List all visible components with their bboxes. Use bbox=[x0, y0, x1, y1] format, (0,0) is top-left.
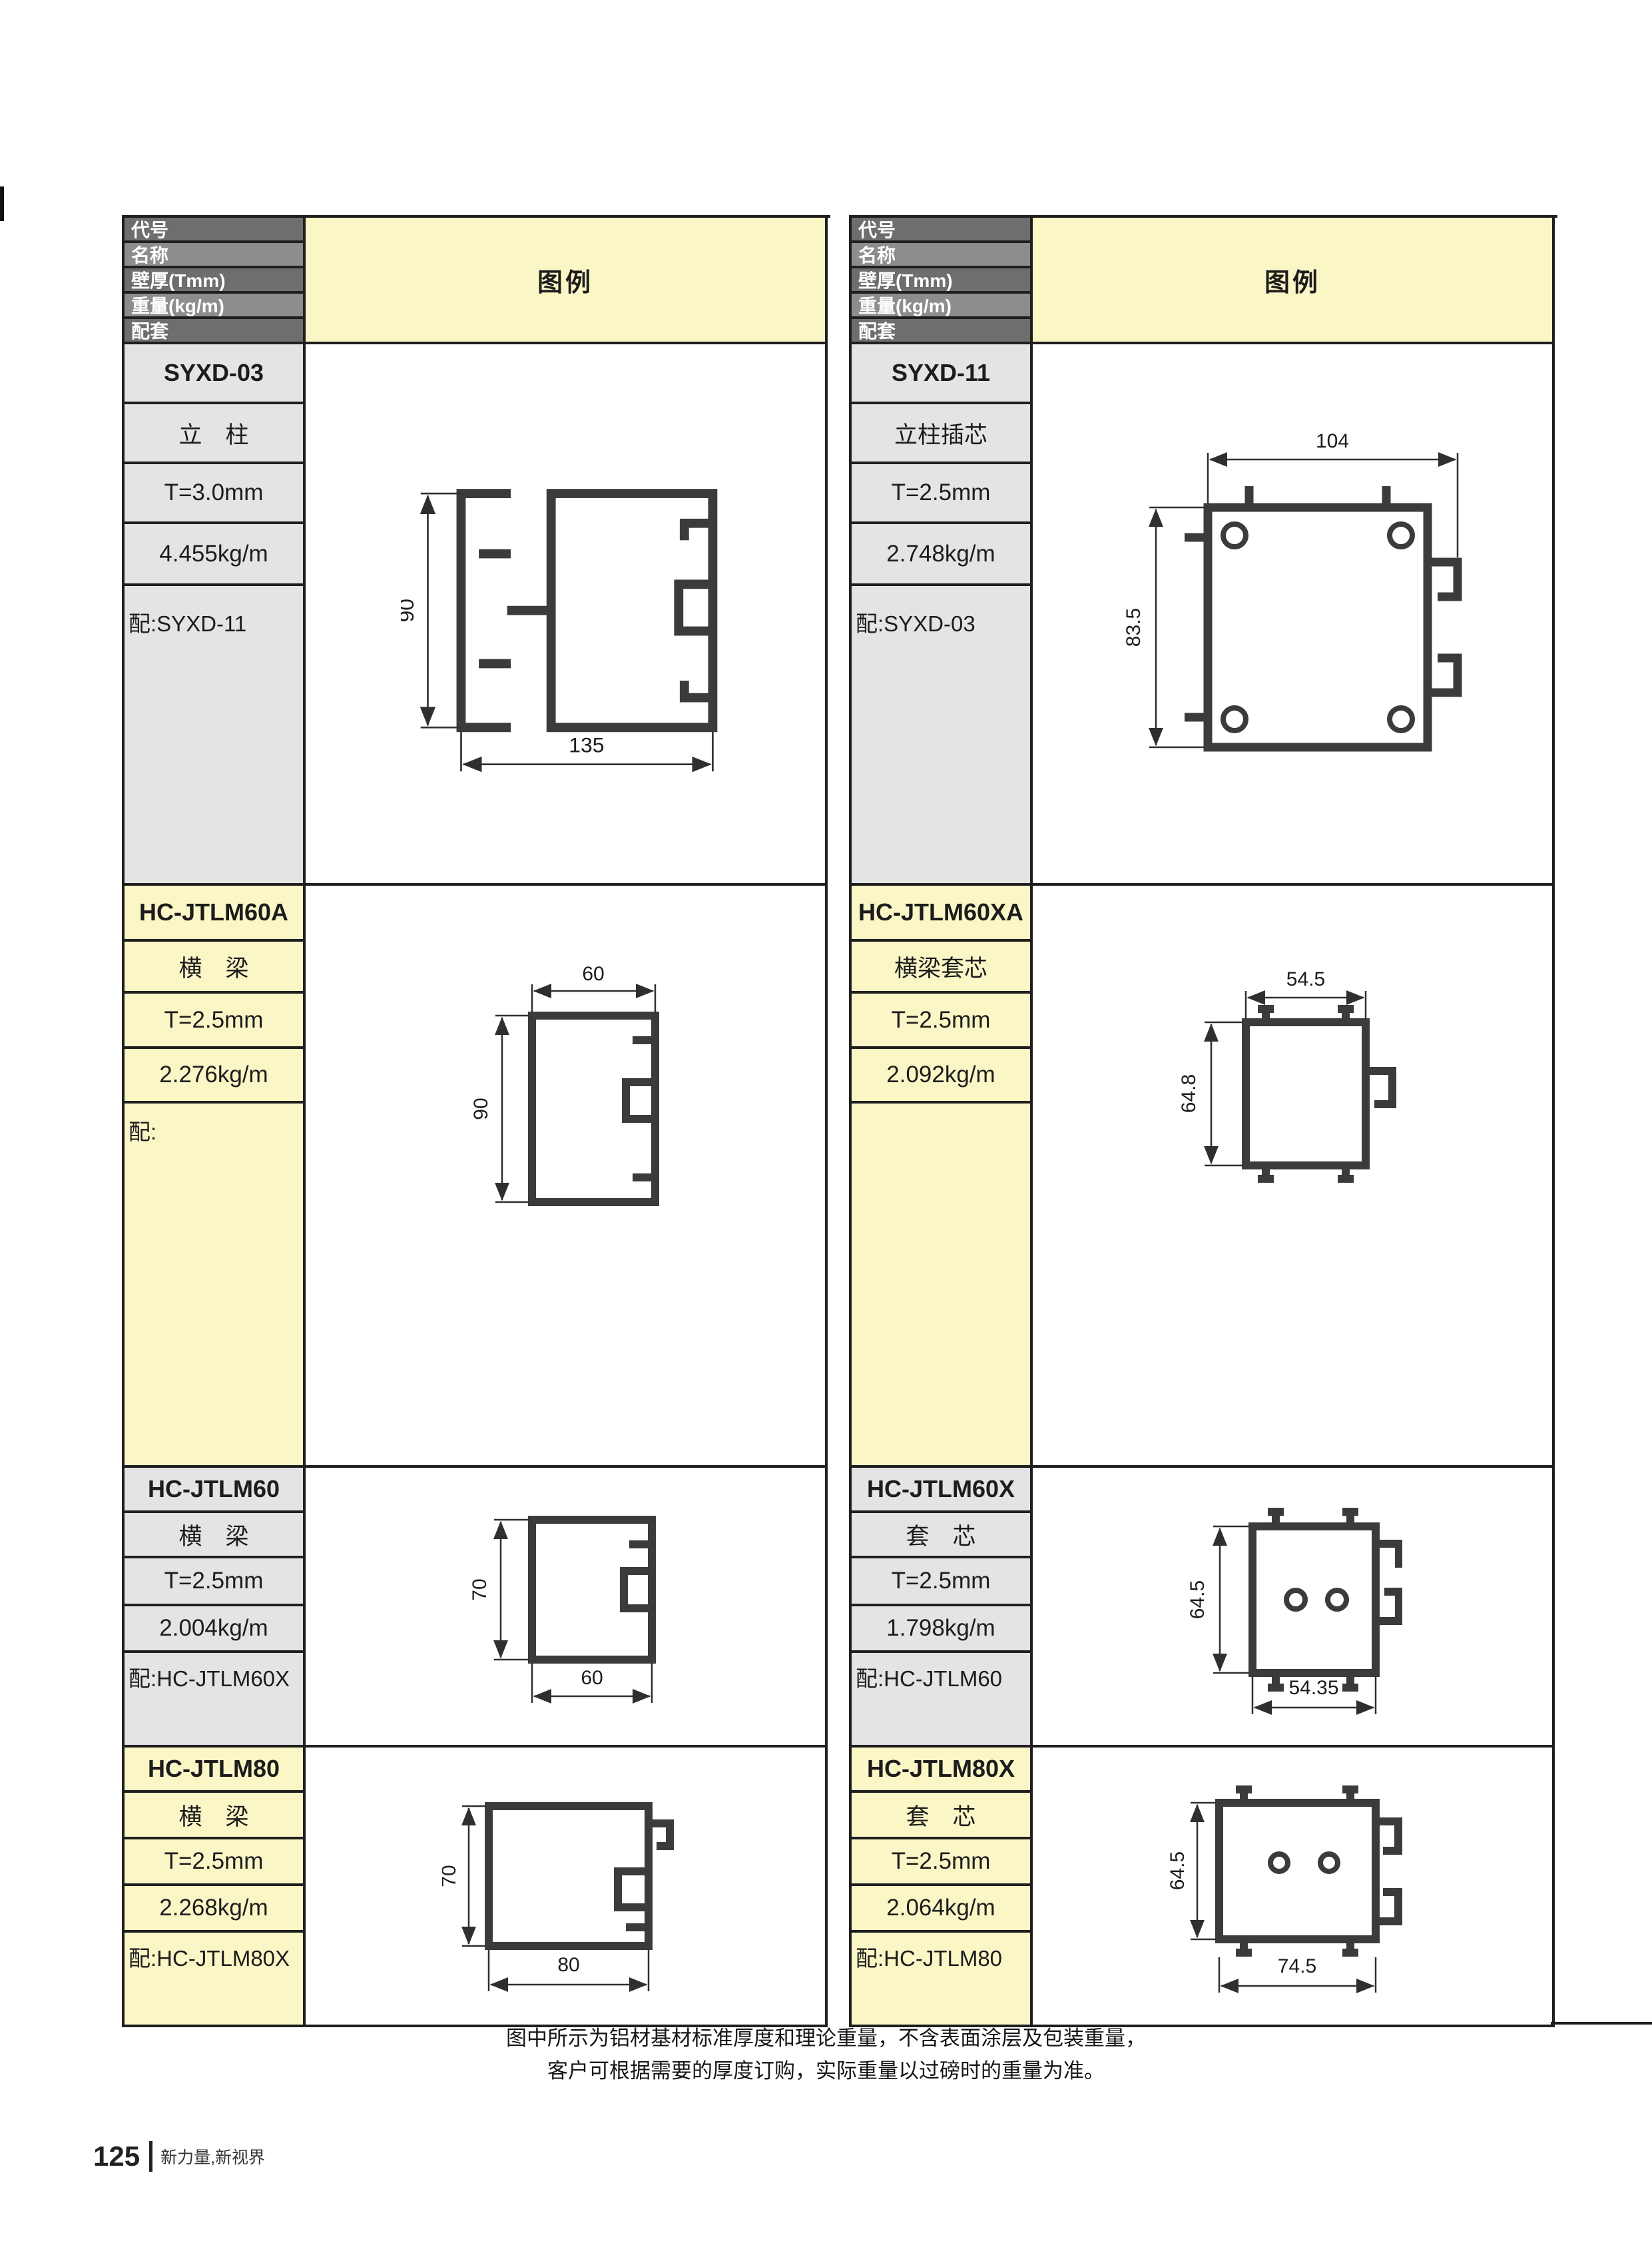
legend-header: 图例 bbox=[1033, 218, 1555, 344]
dim-width-label: 54.5 bbox=[1286, 968, 1325, 990]
profile-drawing-hc-jtlm80x: 64.5 74.5 bbox=[1169, 1763, 1416, 2009]
header-row-weight: 重量(kg/m) bbox=[125, 294, 306, 319]
mate-product: 配:HC-JTLM60X bbox=[125, 1653, 306, 1748]
mate-product bbox=[852, 1104, 1033, 1468]
profile-drawing-hc-jtlm80: 70 80 bbox=[442, 1760, 688, 2013]
dim-height-label: 64.5 bbox=[1169, 1851, 1189, 1890]
drawing-cell: 70 80 bbox=[306, 1748, 828, 2027]
mate-product: 配: bbox=[125, 1104, 306, 1468]
product-section: SYXD-03 立 柱 T=3.0mm 4.455kg/m 配:SYXD-11 bbox=[125, 344, 830, 886]
unit-weight: 2.064kg/m bbox=[852, 1886, 1033, 1933]
wall-thickness: T=2.5mm bbox=[852, 994, 1033, 1049]
print-registration-mark bbox=[0, 186, 4, 221]
dim-height-label: 70 bbox=[442, 1865, 460, 1887]
dim-width-label: 60 bbox=[581, 1667, 603, 1689]
catalog-page: { "header": { "row_labels": ["代号", "名称",… bbox=[0, 0, 1652, 2241]
dim-width-label: 74.5 bbox=[1278, 1955, 1316, 1977]
dim-width-label: 135 bbox=[569, 733, 604, 757]
footnote-line-2: 客户可根据需要的厚度订购，实际重量以过磅时的重量为准。 bbox=[0, 2055, 1652, 2087]
product-name: 横 梁 bbox=[125, 942, 306, 994]
dim-height-label: 90 bbox=[401, 598, 418, 622]
mate-product: 配:HC-JTLM80X bbox=[125, 1933, 306, 2027]
unit-weight: 4.455kg/m bbox=[125, 524, 306, 586]
dim-width-label: 54.35 bbox=[1288, 1677, 1338, 1699]
footnote: 图中所示为铝材基材标准厚度和理论重量，不含表面涂层及包装重量， 客户可根据需要的… bbox=[0, 2022, 1652, 2087]
wall-thickness: T=2.5mm bbox=[125, 994, 306, 1049]
page-number: 125 bbox=[93, 2140, 140, 2172]
wall-thickness: T=2.5mm bbox=[125, 1558, 306, 1606]
product-name: 横梁套芯 bbox=[852, 942, 1033, 994]
unit-weight: 2.004kg/m bbox=[125, 1606, 306, 1653]
product-section: HC-JTLM60 横 梁 T=2.5mm 2.004kg/m 配:HC-JTL… bbox=[125, 1468, 830, 1748]
header-row-mate: 配套 bbox=[852, 319, 1033, 344]
drawing-cell: 54.5 64.8 bbox=[1033, 886, 1555, 1468]
dim-height-label: 83.5 bbox=[1123, 607, 1145, 646]
header-row-code: 代号 bbox=[852, 218, 1033, 243]
table-header: 代号 名称 壁厚(Tmm) 重量(kg/m) 配套 图例 bbox=[125, 218, 830, 344]
unit-weight: 1.798kg/m bbox=[852, 1606, 1033, 1653]
wall-thickness: T=3.0mm bbox=[125, 464, 306, 524]
product-name: 立柱插芯 bbox=[852, 404, 1033, 464]
wall-thickness: T=2.5mm bbox=[125, 1839, 306, 1886]
product-code: HC-JTLM60 bbox=[125, 1468, 306, 1513]
dim-width-label: 80 bbox=[557, 1954, 579, 1976]
drawing-cell: 70 60 bbox=[306, 1468, 828, 1748]
profile-drawing-hc-jtlm60xa: 54.5 64.8 bbox=[1166, 959, 1419, 1192]
product-name: 横 梁 bbox=[125, 1513, 306, 1558]
product-code: HC-JTLM60A bbox=[125, 886, 306, 942]
unit-weight: 2.268kg/m bbox=[125, 1886, 306, 1933]
product-section: SYXD-11 立柱插芯 T=2.5mm 2.748kg/m 配:SYXD-03 bbox=[852, 344, 1557, 886]
header-row-name: 名称 bbox=[125, 243, 306, 268]
drawing-cell: 104 83.5 bbox=[1033, 344, 1555, 886]
product-code: SYXD-11 bbox=[852, 344, 1033, 404]
dim-height-label: 90 bbox=[470, 1098, 492, 1120]
header-row-thickness: 壁厚(Tmm) bbox=[852, 268, 1033, 294]
header-row-mate: 配套 bbox=[125, 319, 306, 344]
footnote-line-1: 图中所示为铝材基材标准厚度和理论重量，不含表面涂层及包装重量， bbox=[0, 2022, 1652, 2055]
drawing-cell: 64.5 54.35 bbox=[1033, 1468, 1555, 1748]
header-row-code: 代号 bbox=[125, 218, 306, 243]
drawing-cell: 60 90 bbox=[306, 886, 828, 1468]
product-section: HC-JTLM80 横 梁 T=2.5mm 2.268kg/m 配:HC-JTL… bbox=[125, 1748, 830, 2027]
product-code: SYXD-03 bbox=[125, 344, 306, 404]
mate-product: 配:SYXD-03 bbox=[852, 586, 1033, 886]
product-code: HC-JTLM80X bbox=[852, 1748, 1033, 1793]
profile-drawing-syxd-11: 104 83.5 bbox=[1108, 394, 1478, 834]
product-section: HC-JTLM80X 套 芯 T=2.5mm 2.064kg/m 配:HC-JT… bbox=[852, 1748, 1557, 2027]
product-name: 套 芯 bbox=[852, 1513, 1033, 1558]
product-code: HC-JTLM60XA bbox=[852, 886, 1033, 942]
drawing-cell: 90 135 bbox=[306, 344, 828, 886]
product-section: HC-JTLM60X 套 芯 T=2.5mm 1.798kg/m 配:HC-JT… bbox=[852, 1468, 1557, 1748]
product-name: 立 柱 bbox=[125, 404, 306, 464]
wall-thickness: T=2.5mm bbox=[852, 1839, 1033, 1886]
product-name: 套 芯 bbox=[852, 1793, 1033, 1839]
spec-table-left: 代号 名称 壁厚(Tmm) 重量(kg/m) 配套 图例 SYXD-03 立 柱… bbox=[122, 215, 830, 2027]
unit-weight: 2.276kg/m bbox=[125, 1049, 306, 1104]
product-code: HC-JTLM80 bbox=[125, 1748, 306, 1793]
profile-drawing-hc-jtlm60: 70 60 bbox=[469, 1483, 662, 1730]
wall-thickness: T=2.5mm bbox=[852, 464, 1033, 524]
dim-width-label: 104 bbox=[1315, 430, 1348, 452]
profile-drawing-syxd-03: 90 135 bbox=[401, 451, 730, 777]
legend-header: 图例 bbox=[306, 218, 828, 344]
dim-height-label: 64.5 bbox=[1187, 1580, 1209, 1619]
product-section: HC-JTLM60A 横 梁 T=2.5mm 2.276kg/m 配: 60 bbox=[125, 886, 830, 1468]
wall-thickness: T=2.5mm bbox=[852, 1558, 1033, 1606]
spec-table-right: 代号 名称 壁厚(Tmm) 重量(kg/m) 配套 图例 SYXD-11 立柱插… bbox=[849, 215, 1557, 2027]
dim-height-label: 64.8 bbox=[1178, 1074, 1200, 1113]
unit-weight: 2.092kg/m bbox=[852, 1049, 1033, 1104]
drawing-cell: 64.5 74.5 bbox=[1033, 1748, 1555, 2027]
header-row-weight: 重量(kg/m) bbox=[852, 294, 1033, 319]
mate-product: 配:SYXD-11 bbox=[125, 586, 306, 886]
profile-drawing-hc-jtlm60a: 60 90 bbox=[462, 959, 669, 1225]
footer-slogan: 新力量,新视界 bbox=[160, 2144, 265, 2168]
product-name: 横 梁 bbox=[125, 1793, 306, 1839]
profile-drawing-hc-jtlm60x: 64.5 54.35 bbox=[1183, 1480, 1402, 1733]
product-section: HC-JTLM60XA 横梁套芯 T=2.5mm 2.092kg/m bbox=[852, 886, 1557, 1468]
page-footer: 125 新力量,新视界 bbox=[93, 2140, 265, 2172]
header-row-thickness: 壁厚(Tmm) bbox=[125, 268, 306, 294]
mate-product: 配:HC-JTLM60 bbox=[852, 1653, 1033, 1748]
footer-divider bbox=[149, 2141, 152, 2172]
dim-width-label: 60 bbox=[582, 963, 604, 985]
header-row-name: 名称 bbox=[852, 243, 1033, 268]
table-header: 代号 名称 壁厚(Tmm) 重量(kg/m) 配套 图例 bbox=[852, 218, 1557, 344]
product-code: HC-JTLM60X bbox=[852, 1468, 1033, 1513]
mate-product: 配:HC-JTLM80 bbox=[852, 1933, 1033, 2027]
dim-height-label: 70 bbox=[469, 1578, 491, 1600]
unit-weight: 2.748kg/m bbox=[852, 524, 1033, 586]
profile-spec-tables: 代号 名称 壁厚(Tmm) 重量(kg/m) 配套 图例 SYXD-03 立 柱… bbox=[122, 215, 1557, 2027]
